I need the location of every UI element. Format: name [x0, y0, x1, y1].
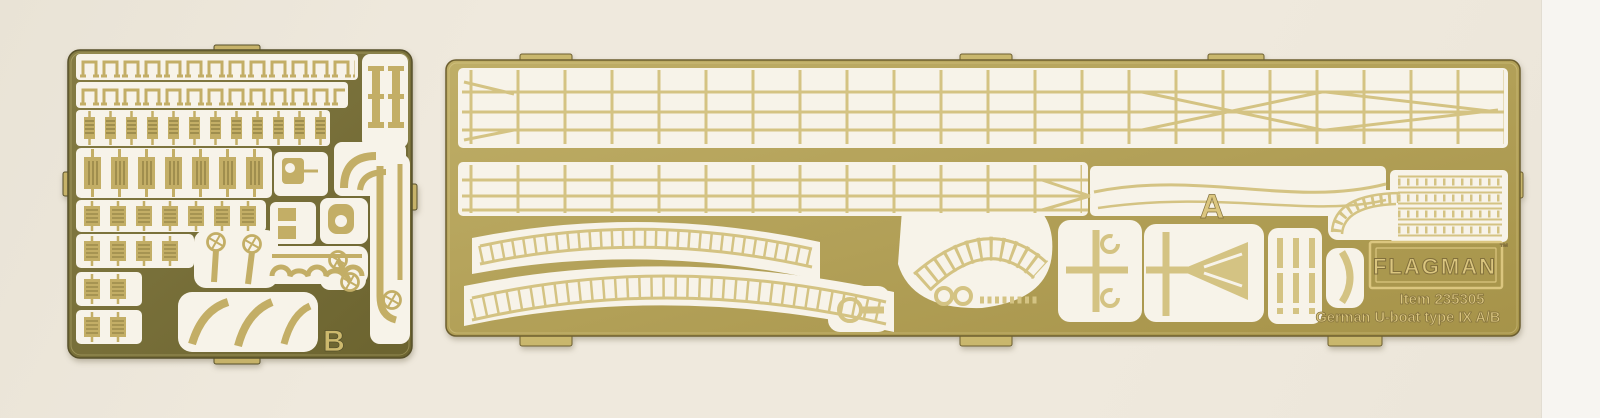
parts-row-squares-2	[79, 236, 183, 266]
trademark-symbol: ™	[1500, 242, 1509, 252]
parts-row-squares-1	[79, 201, 261, 231]
parts-row-squares-4	[79, 312, 131, 342]
parts-row-staples-1	[79, 54, 355, 80]
parts-row-squares-3	[79, 274, 131, 304]
product-name-text: German U-boat type IX A/B	[1316, 310, 1501, 326]
railing-strip-top	[462, 68, 1504, 148]
railing-strip-middle	[462, 163, 1090, 215]
scanner-edge-strip	[1541, 0, 1600, 418]
photoetch-fret-a: A FLAGMAN ™ Item 235305 German U-boat ty…	[442, 52, 1524, 348]
item-number-text: Item 235305	[1399, 291, 1484, 308]
flagman-logo-text: FLAGMAN	[1373, 254, 1497, 279]
parts-row-staples-2	[79, 82, 345, 108]
fret-b-label: B	[323, 325, 345, 358]
photoetch-fret-b: B	[62, 44, 418, 366]
fret-a-label: A	[1200, 188, 1225, 226]
parts-row-slats	[79, 149, 268, 197]
parts-row-grilles	[79, 111, 327, 145]
